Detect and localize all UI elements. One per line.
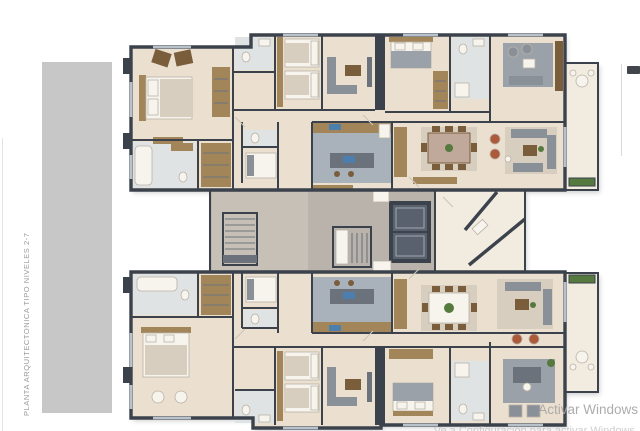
planter bbox=[569, 275, 595, 283]
floor-plan-drawing bbox=[113, 27, 625, 431]
gray-side-band bbox=[42, 62, 112, 413]
page-edge-line bbox=[2, 138, 3, 431]
planter bbox=[569, 178, 595, 186]
lobby-door bbox=[373, 191, 389, 202]
plan-title-vertical: PLANTA ARQUITECTONICA TIPO NIVELES 2-7 bbox=[22, 234, 36, 416]
pantry-closet-lower bbox=[394, 279, 407, 329]
closet-lower bbox=[201, 275, 231, 315]
pantry-closet bbox=[394, 127, 407, 177]
watermark-line1: Activar Windows bbox=[538, 402, 638, 417]
dining-area-lower bbox=[421, 285, 477, 331]
dimension-line bbox=[621, 64, 622, 156]
sideboard bbox=[413, 177, 457, 184]
watermark-line2: Ve a Configuración para activar Windows. bbox=[434, 425, 638, 431]
floor-plan-page: PLANTA ARQUITECTONICA TIPO NIVELES 2-7 bbox=[0, 0, 640, 431]
elevators bbox=[389, 201, 431, 263]
living-room bbox=[505, 127, 557, 174]
north-arrow-fragment-icon bbox=[627, 66, 640, 74]
windows-activation-watermark: Activar Windows bbox=[538, 402, 638, 417]
dining-area bbox=[421, 126, 477, 171]
guest-bedroom bbox=[246, 153, 276, 178]
